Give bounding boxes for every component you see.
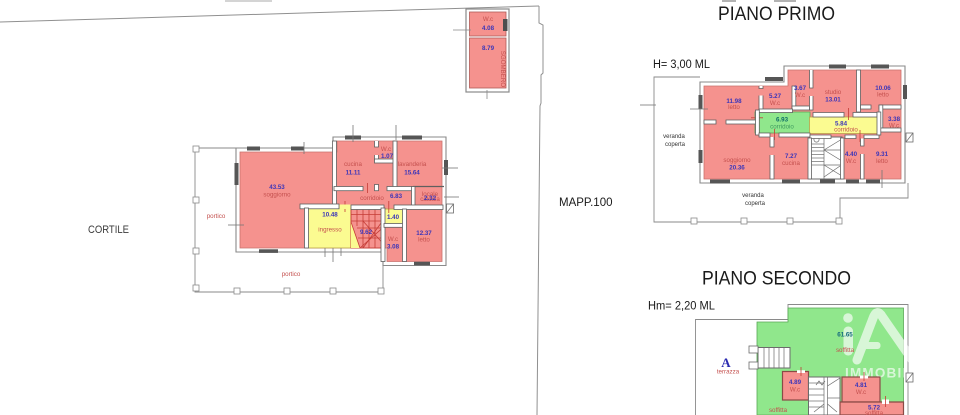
- svg-text:soggiorno: soggiorno: [263, 192, 291, 199]
- svg-text:W.c: W.c: [770, 100, 780, 107]
- svg-text:4.81: 4.81: [855, 382, 868, 389]
- svg-text:cucina: cucina: [782, 160, 800, 167]
- svg-text:SGOMBERO: SGOMBERO: [499, 51, 506, 88]
- svg-text:W.c: W.c: [483, 16, 493, 23]
- svg-text:soffitta: soffitta: [836, 347, 855, 354]
- svg-text:4.40: 4.40: [845, 151, 858, 158]
- svg-text:letto: letto: [876, 158, 888, 165]
- svg-text:5.27: 5.27: [769, 93, 782, 100]
- svg-text:20.36: 20.36: [729, 165, 745, 172]
- svg-text:portico: portico: [207, 213, 226, 220]
- svg-text:cucina: cucina: [344, 161, 362, 168]
- svg-text:corridoio: corridoio: [770, 124, 794, 131]
- svg-text:PIANO PRIMO: PIANO PRIMO: [718, 4, 835, 25]
- svg-text:9.62: 9.62: [360, 229, 373, 236]
- svg-text:3.67: 3.67: [794, 85, 807, 92]
- svg-text:W.c: W.c: [856, 389, 866, 396]
- svg-text:CORTILE: CORTILE: [88, 224, 129, 236]
- svg-text:W.c: W.c: [388, 236, 398, 243]
- svg-text:letto: letto: [728, 104, 740, 111]
- svg-text:3.08: 3.08: [387, 244, 400, 251]
- svg-text:15.64: 15.64: [404, 170, 420, 177]
- svg-text:corridoio: corridoio: [360, 195, 384, 202]
- svg-text:Hm= 2,20 ML: Hm= 2,20 ML: [648, 301, 716, 313]
- svg-text:soffitta: soffitta: [865, 410, 884, 415]
- svg-text:lavanderia: lavanderia: [398, 161, 427, 168]
- svg-text:13.01: 13.01: [825, 97, 841, 104]
- svg-text:W.c: W.c: [846, 158, 856, 165]
- svg-text:4.89: 4.89: [789, 379, 802, 386]
- svg-text:W.c: W.c: [889, 123, 899, 130]
- svg-text:studio: studio: [825, 89, 842, 96]
- svg-text:8.79: 8.79: [482, 45, 495, 52]
- svg-text:veranda: veranda: [663, 134, 685, 140]
- svg-text:portico: portico: [282, 271, 301, 278]
- svg-text:coperta: coperta: [665, 142, 686, 148]
- svg-text:MAPP.100: MAPP.100: [559, 197, 613, 209]
- svg-text:letto: letto: [877, 92, 889, 99]
- svg-text:2.32: 2.32: [424, 195, 437, 202]
- svg-text:veranda: veranda: [742, 193, 764, 199]
- svg-text:9.31: 9.31: [876, 151, 889, 158]
- svg-text:6.93: 6.93: [776, 117, 789, 124]
- svg-text:1.40: 1.40: [387, 214, 400, 221]
- svg-text:11.11: 11.11: [346, 170, 361, 177]
- svg-text:10.48: 10.48: [322, 212, 338, 219]
- svg-text:W.c: W.c: [790, 387, 800, 394]
- svg-text:PIANO SECONDO: PIANO SECONDO: [702, 269, 851, 290]
- svg-text:terrazza: terrazza: [717, 369, 740, 376]
- svg-text:1.07: 1.07: [381, 153, 394, 160]
- svg-text:W.c: W.c: [381, 146, 391, 153]
- svg-text:43.53: 43.53: [269, 184, 285, 191]
- svg-text:coperta: coperta: [745, 201, 766, 207]
- svg-text:soggiorno: soggiorno: [723, 157, 751, 164]
- svg-text:H= 3,00 ML: H= 3,00 ML: [653, 59, 711, 71]
- svg-text:letto: letto: [418, 237, 430, 244]
- svg-text:4.08: 4.08: [482, 25, 495, 32]
- svg-text:W.c: W.c: [795, 92, 805, 99]
- svg-text:ingresso: ingresso: [318, 227, 342, 234]
- svg-text:6.83: 6.83: [390, 193, 403, 200]
- svg-text:soffitta: soffitta: [769, 407, 788, 414]
- svg-text:7.27: 7.27: [785, 153, 798, 160]
- svg-text:corridoio: corridoio: [834, 127, 858, 134]
- svg-text:61.65: 61.65: [837, 332, 853, 339]
